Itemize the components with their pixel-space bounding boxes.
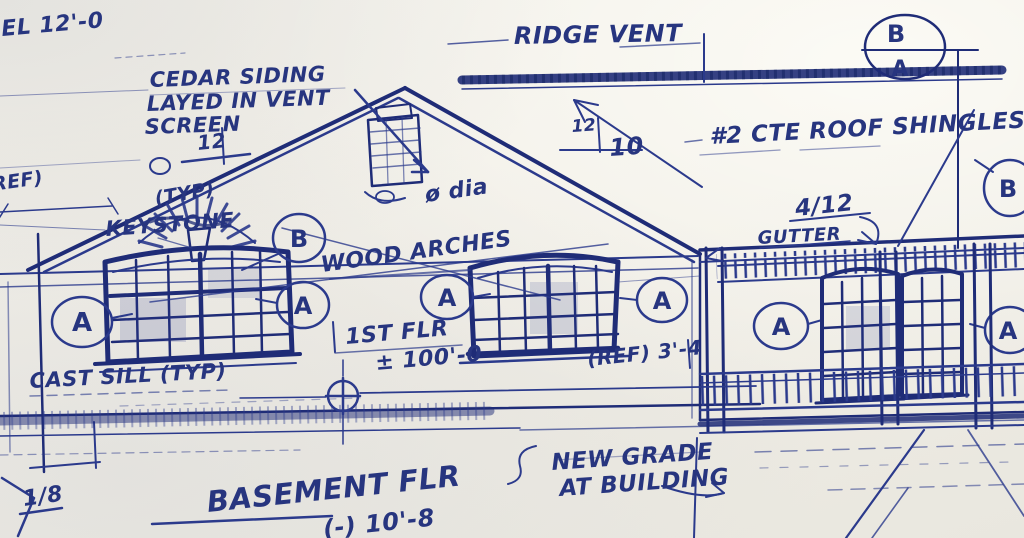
pitch-mid-run: 10 <box>608 132 644 162</box>
first-floor-label: 1ST FLR <box>344 316 449 350</box>
sill-note: CAST SILL (TYP) <box>29 359 227 393</box>
basement-elev: (-) 10'-8 <box>322 503 436 538</box>
window-tag-a5: A <box>772 313 791 341</box>
slope-right-label: 4/12 <box>793 190 855 222</box>
chimney-dia-note: ø dia <box>422 174 489 208</box>
porch-section <box>700 110 1024 433</box>
edge-tag-b: B <box>999 175 1017 203</box>
window-tag-a4: A <box>653 287 672 315</box>
first-floor-elev: ± 100'-0 <box>374 342 483 376</box>
gutter-label: GUTTER <box>757 224 842 249</box>
shingles-note: #2 CTE ROOF SHINGLES <box>709 107 1024 150</box>
chimney <box>365 104 422 203</box>
arch-tag-b: B <box>290 225 308 253</box>
corner-elevation-note: EL 12'-0 <box>0 8 104 42</box>
ref-dim-note: (REF) 3'-4 <box>586 335 703 371</box>
detail-letter-top: B <box>887 20 905 48</box>
ref-note: (REF) <box>0 167 45 197</box>
wood-arches-label: WOOD ARCHES <box>319 226 513 278</box>
window-tag-a2: A <box>294 292 313 320</box>
window-tag-a3: A <box>438 284 457 312</box>
blueprint-drawing: B A 12 12 10 <box>0 0 1024 538</box>
pitch-mid-rise: 12 <box>571 115 597 137</box>
window-tag-a1: A <box>72 308 92 338</box>
window-tag-a6: A <box>999 317 1018 345</box>
pitch-symbol-mid: 12 10 <box>560 100 702 187</box>
blueprint-photo: B A 12 12 10 <box>0 0 1024 538</box>
cedar-note-line3: SCREEN <box>144 112 241 139</box>
keystone-label: KEYSTONE <box>105 208 236 241</box>
detail-letter-bottom: A <box>891 57 908 82</box>
ridge-vent-label: RIDGE VENT <box>514 19 684 50</box>
